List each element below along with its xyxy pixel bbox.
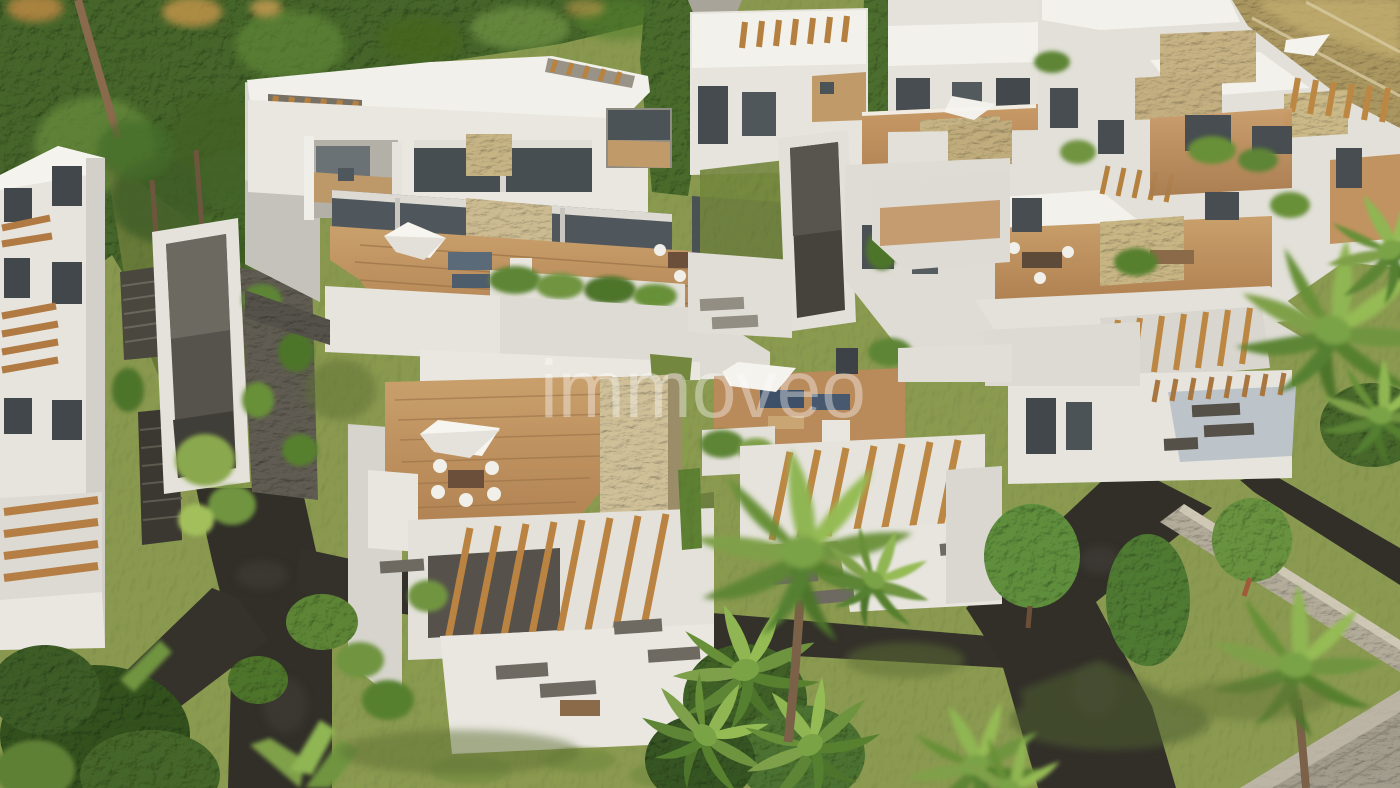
svg-text:immoveo: immoveo [540, 344, 866, 435]
